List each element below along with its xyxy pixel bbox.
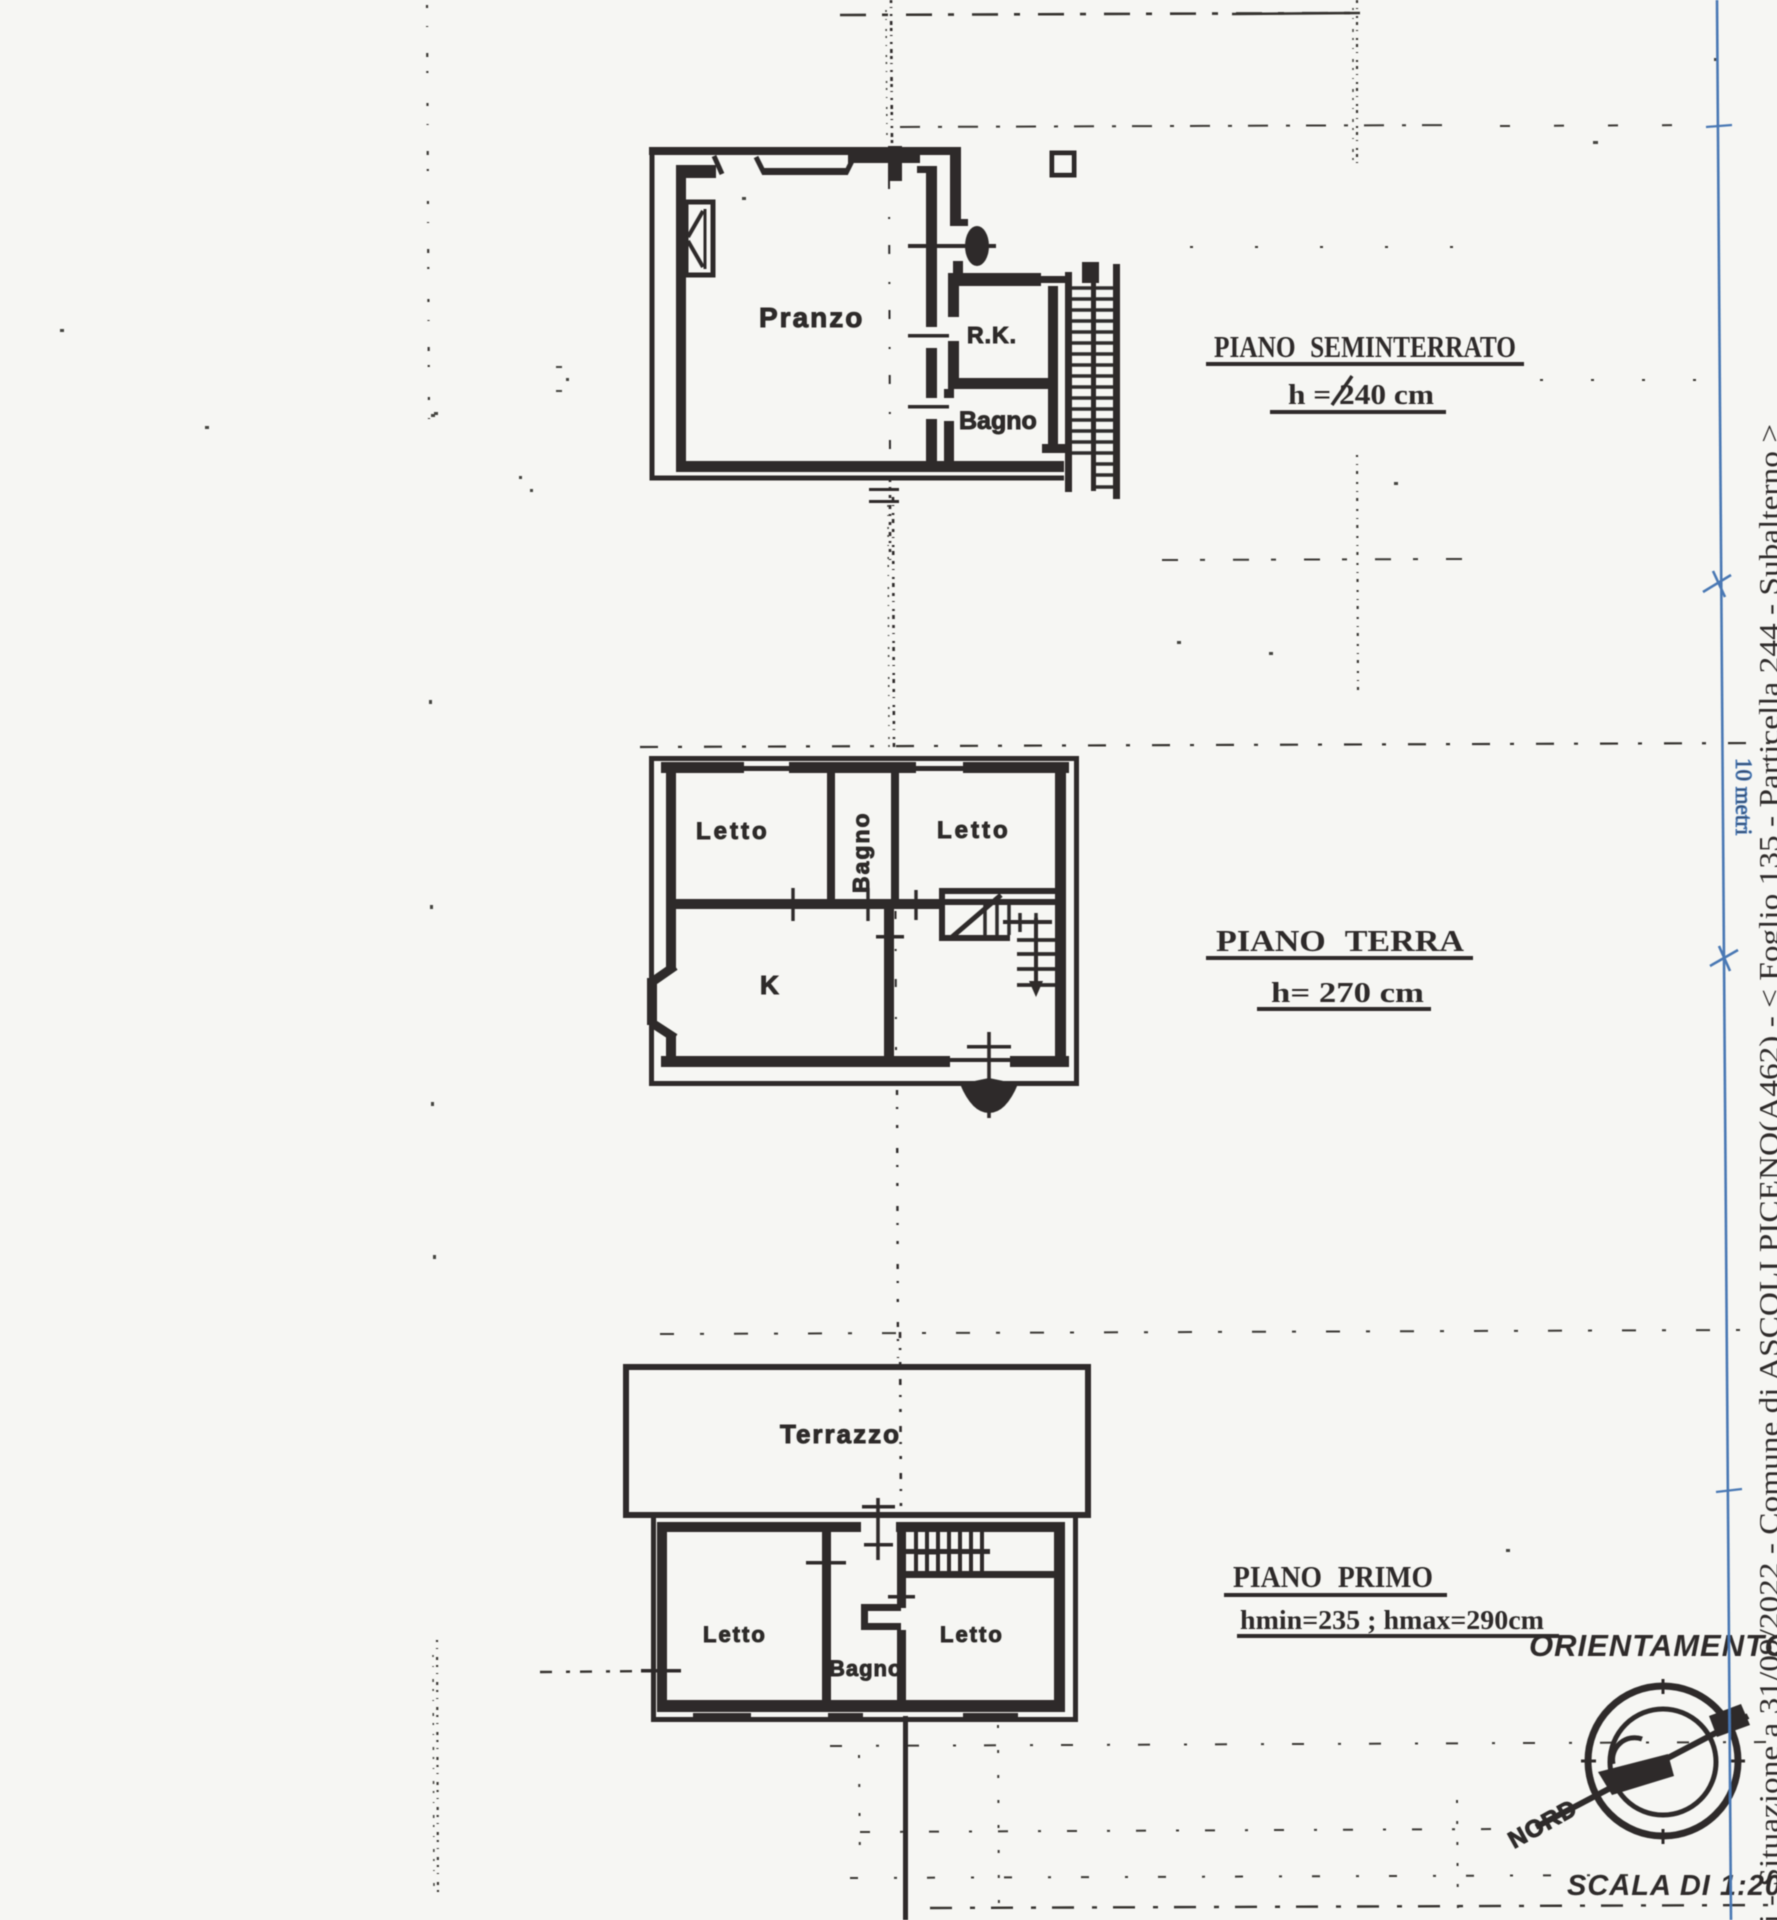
svg-text:PIANO SEMINTERRATO: PIANO SEMINTERRATO (1214, 329, 1516, 364)
svg-text:R.K.: R.K. (967, 322, 1017, 348)
svg-text:ORIENTAMENTO: ORIENTAMENTO (1529, 1628, 1777, 1663)
svg-text:h = 240 cm: h = 240 cm (1288, 380, 1434, 411)
svg-text:h= 270 cm: h= 270 cm (1271, 978, 1424, 1009)
svg-text:Bagno: Bagno (848, 811, 874, 893)
svg-text:Letto: Letto (703, 1622, 767, 1647)
svg-text:PIANO PRIMO: PIANO PRIMO (1233, 1559, 1433, 1594)
svg-text:Terrazzo: Terrazzo (780, 1419, 901, 1449)
svg-text:hmin=235 ; hmax=290cm: hmin=235 ; hmax=290cm (1240, 1605, 1545, 1635)
svg-text:Bagno: Bagno (829, 1656, 902, 1681)
svg-text:Pranzo: Pranzo (759, 302, 864, 333)
svg-text:fabbricati - Situazione a 31/0: fabbricati - Situazione a 31/09/2022 - C… (1755, 424, 1777, 1920)
svg-text:K: K (760, 970, 779, 1000)
svg-text:Letto: Letto (937, 817, 1011, 844)
svg-text:Letto: Letto (940, 1622, 1004, 1647)
svg-text:Bagno: Bagno (959, 407, 1037, 435)
svg-text:PIANO TERRA: PIANO TERRA (1216, 923, 1465, 958)
svg-text:10 metri: 10 metri (1731, 758, 1756, 835)
svg-text:Letto: Letto (696, 818, 770, 845)
svg-text:SCALA DI 1:200: SCALA DI 1:200 (1567, 1870, 1777, 1902)
